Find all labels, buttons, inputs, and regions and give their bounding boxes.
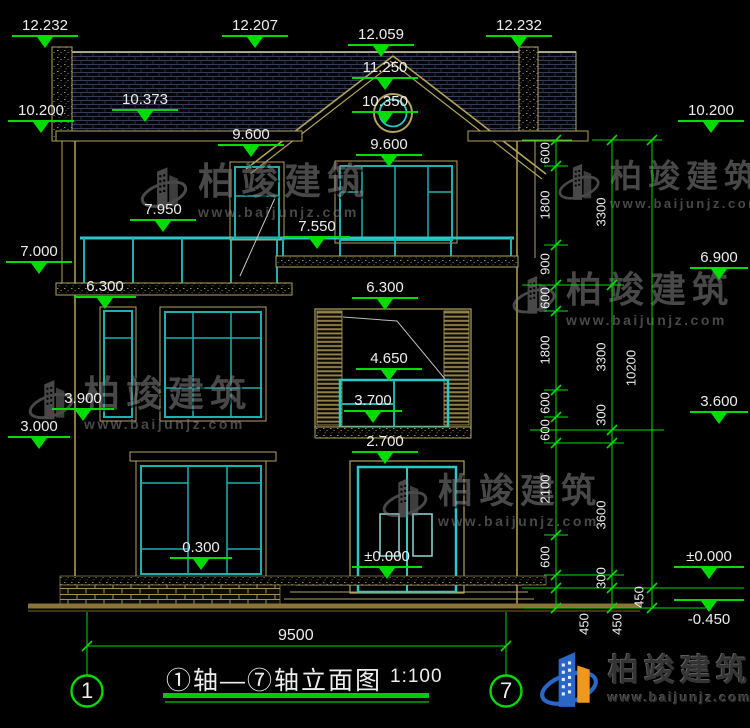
level-triangle-icon xyxy=(377,453,393,464)
dim-label: 600 xyxy=(538,287,553,309)
level-triangle-icon xyxy=(243,146,259,157)
level-marker-0300: 0.300 xyxy=(170,540,232,570)
dim-label: 10200 xyxy=(624,350,639,386)
level-value: 12.059 xyxy=(358,27,404,43)
dim-label: 600 xyxy=(538,419,553,441)
level-marker-6300-left: 6.300 xyxy=(74,279,136,309)
level-marker-12207: 12.207 xyxy=(222,18,288,48)
level-marker-7000: 7.000 xyxy=(6,244,72,274)
level-marker-7950: 7.950 xyxy=(130,202,196,232)
level-marker-4650: 4.650 xyxy=(356,351,422,381)
level-triangle-icon xyxy=(31,263,47,274)
dim-label: 900 xyxy=(538,253,553,275)
level-triangle-icon xyxy=(309,238,325,249)
level-marker-10200-left: 10.200 xyxy=(8,103,74,133)
level-value: 9.600 xyxy=(232,127,270,143)
company-url: www.baijunjz.com xyxy=(608,690,750,705)
dim-label: 3300 xyxy=(594,343,609,372)
company-name: 柏竣建筑 xyxy=(608,655,750,688)
level-triangle-icon xyxy=(365,412,381,423)
level-value: 7.550 xyxy=(298,219,336,235)
level-marker-3600: 3.600 xyxy=(690,394,748,424)
level-value: 10.373 xyxy=(122,92,168,108)
axis-number-7: 7 xyxy=(500,678,512,704)
level-marker-11250: 11.250 xyxy=(352,60,418,90)
level-marker-3000: 3.000 xyxy=(8,419,70,449)
level-marker-minus-0450: -0.450 xyxy=(674,598,744,628)
level-triangle-icon xyxy=(511,37,527,48)
level-value: 7.000 xyxy=(20,244,58,260)
level-marker-6900: 6.900 xyxy=(690,250,748,280)
level-value: 12.232 xyxy=(496,18,542,34)
level-triangle-icon xyxy=(373,46,389,57)
level-value: 0.300 xyxy=(182,540,220,556)
level-triangle-icon xyxy=(711,413,727,424)
level-marker-10200-right: 10.200 xyxy=(678,103,744,133)
dim-label: 450 xyxy=(610,613,625,635)
dim-label: 450 xyxy=(577,613,592,635)
level-marker-7550: 7.550 xyxy=(284,219,350,249)
level-value: 6.300 xyxy=(366,280,404,296)
level-marker-12232-left: 12.232 xyxy=(12,18,78,48)
dim-label: 600 xyxy=(538,392,553,414)
overall-width-dim: 9500 xyxy=(278,627,314,645)
level-value: 9.600 xyxy=(370,137,408,153)
level-triangle-icon xyxy=(377,299,393,310)
dim-label: 300 xyxy=(594,567,609,589)
level-triangle-icon xyxy=(703,122,719,133)
level-marker-3700: 3.700 xyxy=(344,393,402,423)
level-value: 11.250 xyxy=(363,60,408,76)
dim-label: 1800 xyxy=(538,336,553,365)
dim-label: 1800 xyxy=(538,191,553,220)
level-value: 6.300 xyxy=(86,279,124,295)
level-marker-9600-left: 9.600 xyxy=(218,127,284,157)
level-marker-9600-mid: 9.600 xyxy=(356,137,422,167)
level-triangle-icon xyxy=(31,438,47,449)
level-value: ±0.000 xyxy=(686,549,732,565)
level-triangle-icon xyxy=(701,568,717,579)
level-triangle-icon xyxy=(155,221,171,232)
level-value: 10.350 xyxy=(362,94,408,110)
level-value: 3.600 xyxy=(700,394,738,410)
level-triangle-icon xyxy=(381,156,397,167)
level-value: 6.900 xyxy=(700,250,738,266)
level-marker-10350: 10.350 xyxy=(352,94,418,124)
level-marker-12059: 12.059 xyxy=(348,27,414,57)
level-value: 4.650 xyxy=(370,351,408,367)
level-triangle-icon xyxy=(379,568,395,579)
dim-label: 3300 xyxy=(594,198,609,227)
dim-label: 600 xyxy=(538,546,553,568)
level-triangle-icon xyxy=(75,410,91,421)
level-value: -0.450 xyxy=(688,612,731,628)
level-marker-6300-mid: 6.300 xyxy=(352,280,418,310)
level-value: 2.700 xyxy=(366,434,404,450)
level-triangle-icon xyxy=(37,37,53,48)
level-value: 10.200 xyxy=(688,103,734,119)
level-marker-12232-right: 12.232 xyxy=(486,18,552,48)
level-marker-2700: 2.700 xyxy=(352,434,418,464)
level-triangle-icon xyxy=(377,79,393,90)
level-value: 7.950 xyxy=(144,202,182,218)
drawing-scale: 1:100 xyxy=(390,666,443,688)
level-marker-0000-right: ±0.000 xyxy=(674,549,744,579)
level-triangle-icon xyxy=(377,113,393,124)
level-value: 12.232 xyxy=(22,18,68,34)
level-triangle-icon xyxy=(193,559,209,570)
company-logo: 柏竣建筑 www.baijunjz.com xyxy=(538,646,750,714)
level-triangle-icon xyxy=(711,269,727,280)
level-marker-3900: 3.900 xyxy=(52,391,114,421)
level-value: ±0.000 xyxy=(364,549,410,565)
dim-label: 600 xyxy=(538,142,553,164)
level-triangle-icon xyxy=(137,111,153,122)
level-triangle-icon xyxy=(247,37,263,48)
level-triangle-icon xyxy=(33,122,49,133)
level-value: 12.207 xyxy=(232,18,278,34)
level-marker-10373: 10.373 xyxy=(112,92,178,122)
drawing-title: ①轴—⑦轴立面图 xyxy=(166,661,382,697)
level-value: 3.900 xyxy=(64,391,102,407)
level-triangle-icon xyxy=(97,298,113,309)
level-value: 3.700 xyxy=(354,393,392,409)
axis-number-1: 1 xyxy=(81,678,93,704)
dim-label: 450 xyxy=(632,586,647,608)
dim-label: 3600 xyxy=(594,501,609,530)
level-triangle-icon xyxy=(381,370,397,381)
cad-elevation-drawing: 柏竣建筑 www.baijunjz.com 柏竣建筑 www.baijunjz.… xyxy=(0,0,750,728)
dim-label: 2100 xyxy=(538,475,553,504)
level-value: 10.200 xyxy=(18,103,64,119)
company-logo-icon xyxy=(538,646,600,714)
dim-label: 300 xyxy=(594,404,609,426)
level-marker-0000-mid: ±0.000 xyxy=(352,549,422,579)
level-value: 3.000 xyxy=(20,419,58,435)
